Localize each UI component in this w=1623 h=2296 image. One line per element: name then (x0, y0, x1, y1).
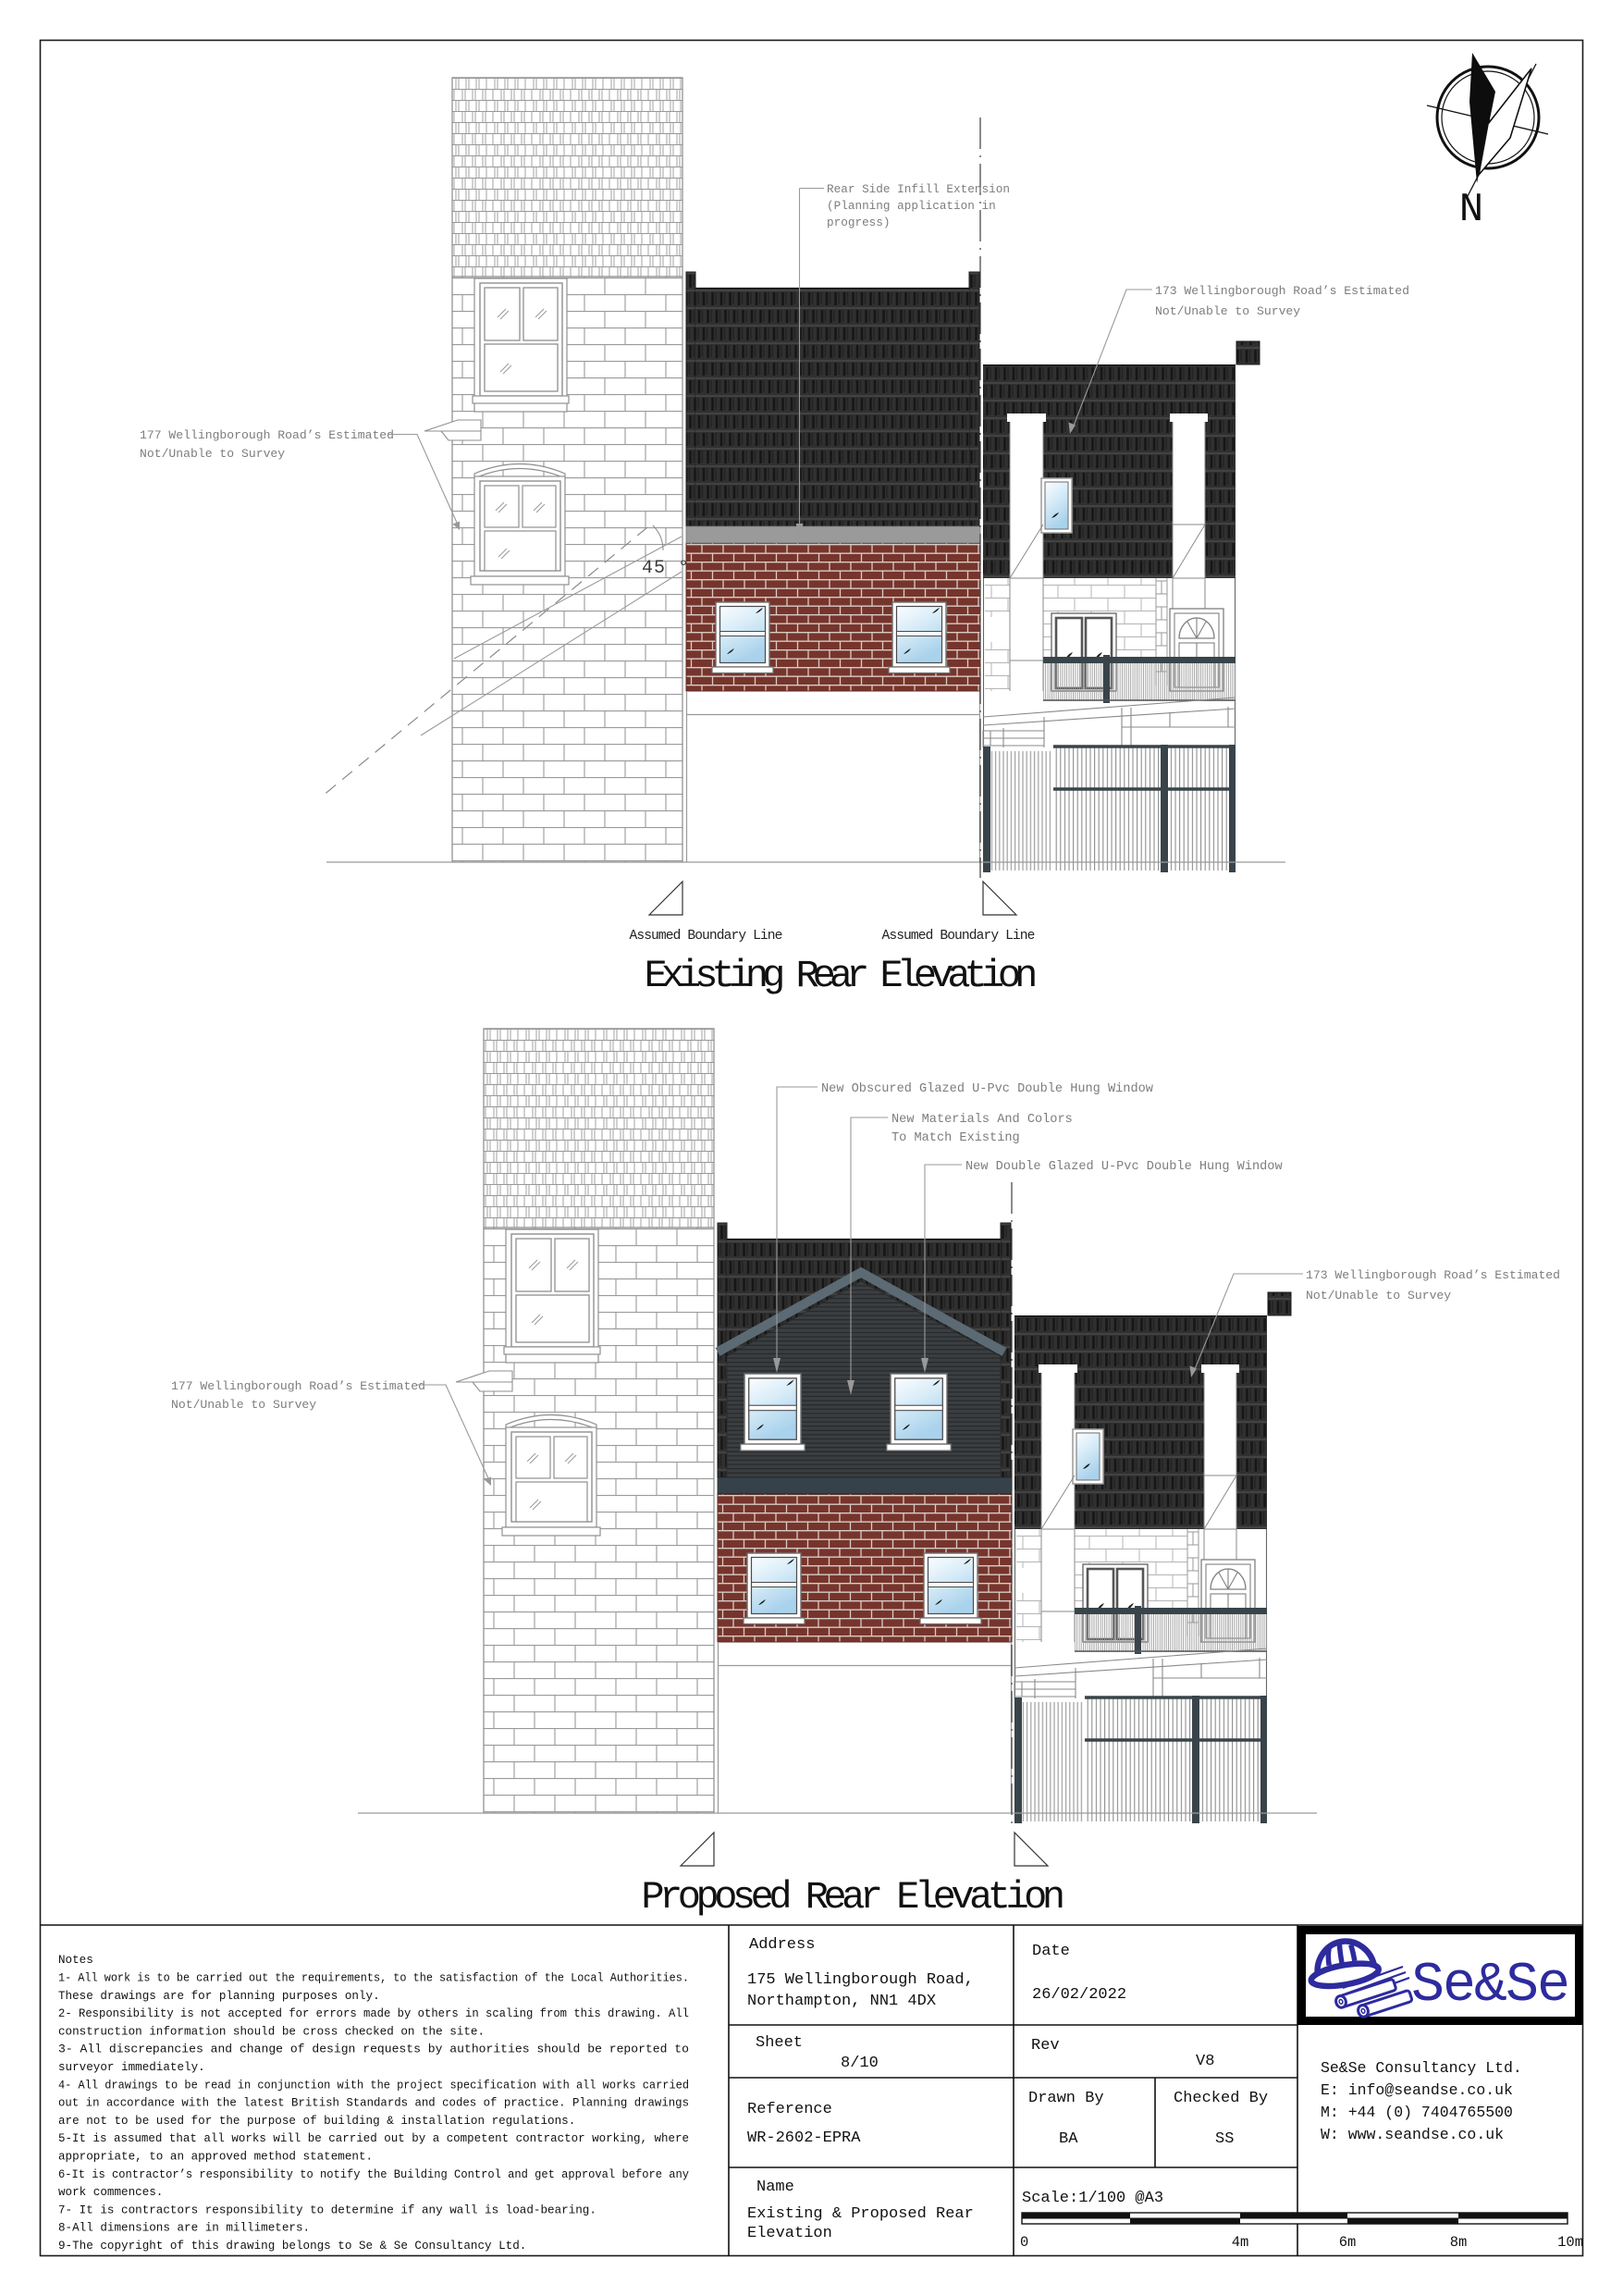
svg-text:Not/Unable to Survey: Not/Unable to Survey (171, 1398, 316, 1412)
svg-text:8m: 8m (1450, 2234, 1468, 2251)
svg-text:8/10: 8/10 (841, 2055, 879, 2072)
svg-text:Not/Unable to Survey: Not/Unable to Survey (1155, 304, 1300, 318)
svg-text:7- It is contractors responsib: 7- It is contractors responsibility to d… (58, 2203, 596, 2216)
svg-text:6-It is contractor’s responsib: 6-It is contractor’s responsibility to n… (58, 2168, 689, 2181)
svg-text:Notes: Notes (58, 1954, 93, 1967)
svg-text:SS: SS (1215, 2130, 1234, 2148)
svg-text:These drawings are for plannin: These drawings are for planning purposes… (58, 1990, 380, 2003)
svg-text:To Match Existing: To Match Existing (891, 1131, 1020, 1145)
svg-text:E: info@seandse.co.uk: E: info@seandse.co.uk (1321, 2081, 1513, 2099)
svg-text:Rev: Rev (1031, 2037, 1060, 2055)
svg-text:Name: Name (756, 2179, 794, 2196)
svg-text:Existing Rear Elevation: Existing Rear Elevation (645, 954, 1035, 998)
svg-text:10m: 10m (1557, 2234, 1583, 2251)
svg-text:Existing & Proposed Rear: Existing & Proposed Rear (747, 2205, 974, 2223)
svg-text:3- All discrepancies and chang: 3- All discrepancies and change of desig… (58, 2043, 689, 2056)
svg-text:Not/Unable to Survey: Not/Unable to Survey (140, 447, 285, 461)
svg-text:173 Wellingborough Road’s Esti: 173 Wellingborough Road’s Estimated (1155, 284, 1409, 298)
svg-text:BA: BA (1059, 2130, 1078, 2148)
svg-text:Se&Se Consultancy Ltd.: Se&Se Consultancy Ltd. (1321, 2059, 1522, 2077)
svg-text:Elevation: Elevation (747, 2225, 832, 2242)
svg-text:9-The copyright of this drawin: 9-The copyright of this drawing belongs … (58, 2240, 526, 2253)
svg-text:1- All work is to be carried o: 1- All work is to be carried out the req… (58, 1972, 689, 1985)
svg-text:0: 0 (1020, 2234, 1028, 2251)
svg-text:Assumed Boundary Line: Assumed Boundary Line (629, 929, 781, 944)
svg-text:(Planning application in: (Planning application in (827, 199, 996, 213)
svg-text:WR-2602-EPRA: WR-2602-EPRA (747, 2129, 861, 2147)
svg-text:6m: 6m (1339, 2234, 1357, 2251)
svg-text:177 Wellingborough Road’s Esti: 177 Wellingborough Road’s Estimated (140, 428, 394, 442)
svg-text:5-It is assumed that all works: 5-It is assumed that all works will be c… (58, 2132, 689, 2145)
svg-text:work commences.: work commences. (58, 2186, 163, 2199)
svg-text:2- Responsibility is not accep: 2- Responsibility is not accepted for er… (58, 2007, 689, 2020)
svg-text:8-All dimensions are in millim: 8-All dimensions are in millimeters. (58, 2222, 310, 2235)
svg-text:4- All drawings to be read in: 4- All drawings to be read in conjunctio… (58, 2079, 689, 2092)
svg-text:out in accordance with the lat: out in accordance with the latest Britis… (58, 2097, 689, 2110)
svg-text:Assumed Boundary Line: Assumed Boundary Line (881, 929, 1034, 944)
svg-text:New Obscured Glazed U-Pvc Doub: New Obscured Glazed U-Pvc Double Hung Wi… (821, 1082, 1154, 1096)
svg-text:4m: 4m (1232, 2234, 1249, 2251)
svg-text:Rear Side Infill Extension: Rear Side Infill Extension (827, 182, 1010, 196)
svg-text:Reference: Reference (747, 2101, 832, 2118)
svg-text:Proposed Rear Elevation: Proposed Rear Elevation (641, 1875, 1062, 1920)
svg-text:26/02/2022: 26/02/2022 (1032, 1986, 1126, 2004)
svg-text:progress): progress) (827, 216, 891, 229)
svg-text:Se&Se: Se&Se (1411, 1955, 1568, 2018)
svg-text:175 Wellingborough Road,: 175 Wellingborough Road, (747, 1971, 974, 1989)
svg-text:appropriate, to an approved me: appropriate, to an approved method state… (58, 2151, 373, 2164)
svg-text:Date: Date (1032, 1943, 1070, 1960)
svg-text:45 °: 45 ° (642, 558, 690, 579)
svg-text:Northampton, NN1 4DX: Northampton, NN1 4DX (747, 1993, 936, 2010)
svg-text:New Materials And Colors: New Materials And Colors (891, 1113, 1073, 1127)
svg-text:construction information shoul: construction information should be cross… (58, 2025, 485, 2038)
svg-text:M: +44 (0) 7404765500: M: +44 (0) 7404765500 (1321, 2104, 1513, 2121)
svg-text:W: www.seandse.co.uk: W: www.seandse.co.uk (1321, 2126, 1504, 2143)
svg-text:173 Wellingborough Road’s Esti: 173 Wellingborough Road’s Estimated (1306, 1268, 1560, 1282)
svg-text:177 Wellingborough Road’s Esti: 177 Wellingborough Road’s Estimated (171, 1379, 425, 1393)
svg-text:Not/Unable to Survey: Not/Unable to Survey (1306, 1289, 1451, 1302)
svg-text:N: N (1459, 187, 1483, 233)
svg-text:V8: V8 (1196, 2053, 1214, 2070)
svg-text:surveyor immediately.: surveyor immediately. (58, 2061, 205, 2074)
svg-text:New Double Glazed U-Pvc Double: New Double Glazed U-Pvc Double Hung Wind… (965, 1160, 1283, 1174)
svg-text:are not to be used for the pur: are not to be used for the purpose of bu… (58, 2115, 575, 2128)
svg-text:Address: Address (749, 1936, 815, 1954)
svg-text:Checked By: Checked By (1174, 2090, 1268, 2107)
svg-text:Sheet: Sheet (756, 2034, 803, 2052)
svg-text:Scale:1/100 @A3: Scale:1/100 @A3 (1022, 2190, 1163, 2207)
svg-text:Drawn By: Drawn By (1028, 2090, 1104, 2107)
